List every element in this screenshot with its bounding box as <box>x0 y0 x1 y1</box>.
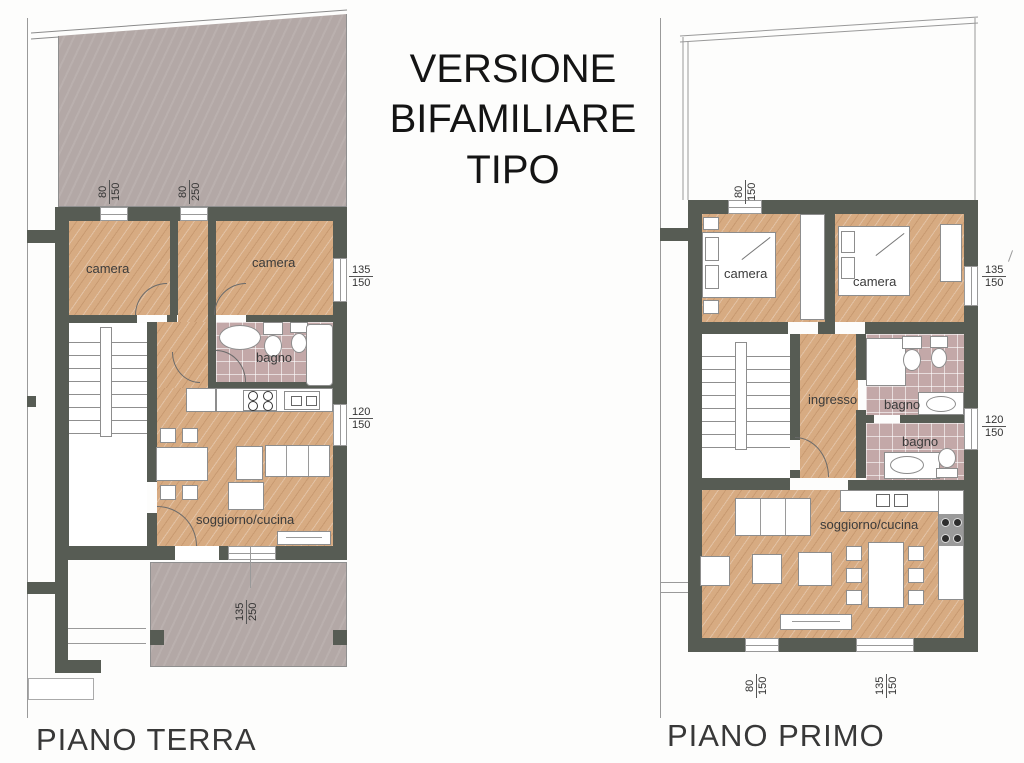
partition <box>818 322 835 334</box>
terrace-door-135x250 <box>228 546 276 560</box>
site-line <box>660 582 688 583</box>
room-label-camera: camera <box>853 274 896 289</box>
room-label-soggiorno: soggiorno/cucina <box>820 517 918 532</box>
title-line-1: VERSIONE <box>348 44 678 94</box>
bidet <box>931 348 947 368</box>
porch-wall <box>55 560 68 672</box>
dimension-120x150: 120150 <box>982 414 1006 441</box>
tv-cabinet <box>780 614 852 630</box>
kitchen-cabinet <box>186 388 216 412</box>
dimension-135x150: 135150 <box>982 264 1006 291</box>
bidet <box>291 333 307 353</box>
window-80x150-bottom <box>745 638 779 652</box>
dining-chair <box>846 546 862 561</box>
partition <box>208 322 216 388</box>
terrace-pillar <box>333 630 347 645</box>
outer-wall-bottom <box>688 638 978 652</box>
partition <box>858 415 874 423</box>
shower-tub <box>306 324 333 386</box>
window-135x150-right <box>964 266 978 306</box>
top-terrace <box>58 2 347 207</box>
armchair <box>236 446 263 480</box>
pillow <box>705 265 719 289</box>
dining-table <box>868 542 904 608</box>
nightstand <box>703 217 719 230</box>
dining-chair <box>846 568 862 583</box>
room-label-camera: camera <box>724 266 767 281</box>
toilet-tank <box>902 336 922 349</box>
bidet-tank <box>930 336 948 348</box>
dimension-135x150-bottom: 135150 <box>874 674 901 698</box>
pillow <box>841 231 855 253</box>
dining-chair <box>160 428 176 443</box>
armchair <box>700 556 730 586</box>
toilet-tank <box>263 322 283 335</box>
window-135x150-right <box>333 258 347 302</box>
dining-chair <box>908 568 924 583</box>
stove-burners <box>245 391 275 410</box>
partition <box>208 221 216 315</box>
dimension-80x150: 80150 <box>97 180 124 204</box>
window-135x150-bottom <box>856 638 914 652</box>
stair-rail <box>100 327 112 437</box>
sofa <box>735 498 811 536</box>
armchair <box>752 554 782 584</box>
dining-chair <box>160 485 176 500</box>
stove-burners <box>939 514 963 546</box>
sink-basin <box>876 494 890 507</box>
door-window-80x250-top <box>180 207 208 221</box>
burner-icon <box>248 391 258 401</box>
partition <box>825 214 835 322</box>
title-line-3: TIPO <box>348 145 678 195</box>
wall-stub-left <box>27 230 57 243</box>
ground-floor-label: PIANO TERRA <box>36 722 257 758</box>
sink <box>890 456 924 474</box>
shower <box>866 338 906 386</box>
dining-table <box>156 447 208 481</box>
sofa-seam <box>785 499 786 535</box>
room-label-bagno: bagno <box>902 434 938 449</box>
partition <box>856 334 866 380</box>
tv-cabinet-line <box>286 537 322 538</box>
sofa <box>265 445 330 477</box>
dimension-135x250: 135250 <box>234 600 261 624</box>
corridor-floor <box>178 221 208 322</box>
partition <box>865 322 964 334</box>
nightstand <box>703 300 719 314</box>
room-label-soggiorno: soggiorno/cucina <box>196 512 294 527</box>
porch-step <box>68 628 146 629</box>
sofa-seam <box>308 446 309 476</box>
burner-icon <box>941 534 950 543</box>
first-floor-label: PIANO PRIMO <box>667 718 885 754</box>
room-label-camera: camera <box>86 261 129 276</box>
sink-basin <box>291 396 302 406</box>
armchair <box>798 552 832 586</box>
roof-outline <box>660 8 990 204</box>
property-line-left <box>27 18 28 718</box>
toilet <box>938 448 956 468</box>
tv-cabinet-line <box>792 621 840 622</box>
wall-stub-left-small <box>27 396 36 407</box>
porch-step <box>68 643 146 644</box>
window-120x150-right <box>964 408 978 450</box>
wall-stub-left <box>660 228 688 241</box>
toilet <box>903 349 921 371</box>
dimension-80x250: 80250 <box>177 180 204 204</box>
partition <box>170 221 178 315</box>
sink-basin <box>306 396 317 406</box>
partition <box>900 415 964 423</box>
burner-icon <box>953 534 962 543</box>
window-120x150-right <box>333 404 347 446</box>
stair-wall <box>790 334 800 440</box>
floorplan-sheet: VERSIONE BIFAMILIARE TIPO <box>0 0 1024 763</box>
sink-basin <box>894 494 908 507</box>
site-line <box>660 592 688 593</box>
room-label-bagno: bagno <box>256 350 292 365</box>
kitchen-counter <box>840 490 940 512</box>
sink <box>219 325 261 350</box>
stair-rail <box>735 342 747 450</box>
dining-chair <box>182 485 198 500</box>
dining-chair <box>846 590 862 605</box>
dimension-leader <box>250 546 251 588</box>
partition <box>848 480 964 490</box>
entry-landing <box>28 678 94 700</box>
sofa-seam <box>760 499 761 535</box>
stair-wall <box>147 513 157 546</box>
porch-door-opening <box>175 546 219 560</box>
toilet-base <box>936 468 958 478</box>
burner-icon <box>953 518 962 527</box>
burner-icon <box>263 391 273 401</box>
side-table <box>228 482 264 510</box>
burner-icon <box>941 518 950 527</box>
wardrobe <box>800 214 825 320</box>
tv-cabinet <box>277 531 331 545</box>
dining-chair <box>908 546 924 561</box>
outer-wall-left <box>55 207 69 560</box>
sofa-seam <box>286 446 287 476</box>
sink <box>926 396 956 412</box>
burner-icon <box>248 401 258 411</box>
title-line-2: BIFAMILIARE <box>348 94 678 144</box>
terrace-pillar <box>150 630 164 645</box>
wardrobe <box>940 224 962 282</box>
dimension-135x150: 135150 <box>349 264 373 291</box>
tick-mark <box>1008 250 1013 262</box>
partition <box>69 315 137 323</box>
window-80x150-top <box>100 207 128 221</box>
porch-wall-stub <box>27 582 55 594</box>
dimension-80x150-bottom: 80150 <box>744 674 771 698</box>
page-title: VERSIONE BIFAMILIARE TIPO <box>348 44 678 195</box>
dimension-120x150: 120150 <box>349 406 373 433</box>
dimension-80x150: 80150 <box>733 180 760 204</box>
room-label-camera: camera <box>252 255 295 270</box>
dining-chair <box>908 590 924 605</box>
partition <box>702 478 790 490</box>
room-label-bagno: bagno <box>884 397 920 412</box>
pillow <box>705 237 719 261</box>
porch-wall-bottom <box>55 660 101 673</box>
burner-icon <box>263 401 273 411</box>
room-label-ingresso: ingresso <box>808 392 857 407</box>
dining-chair <box>182 428 198 443</box>
partition <box>702 322 788 334</box>
